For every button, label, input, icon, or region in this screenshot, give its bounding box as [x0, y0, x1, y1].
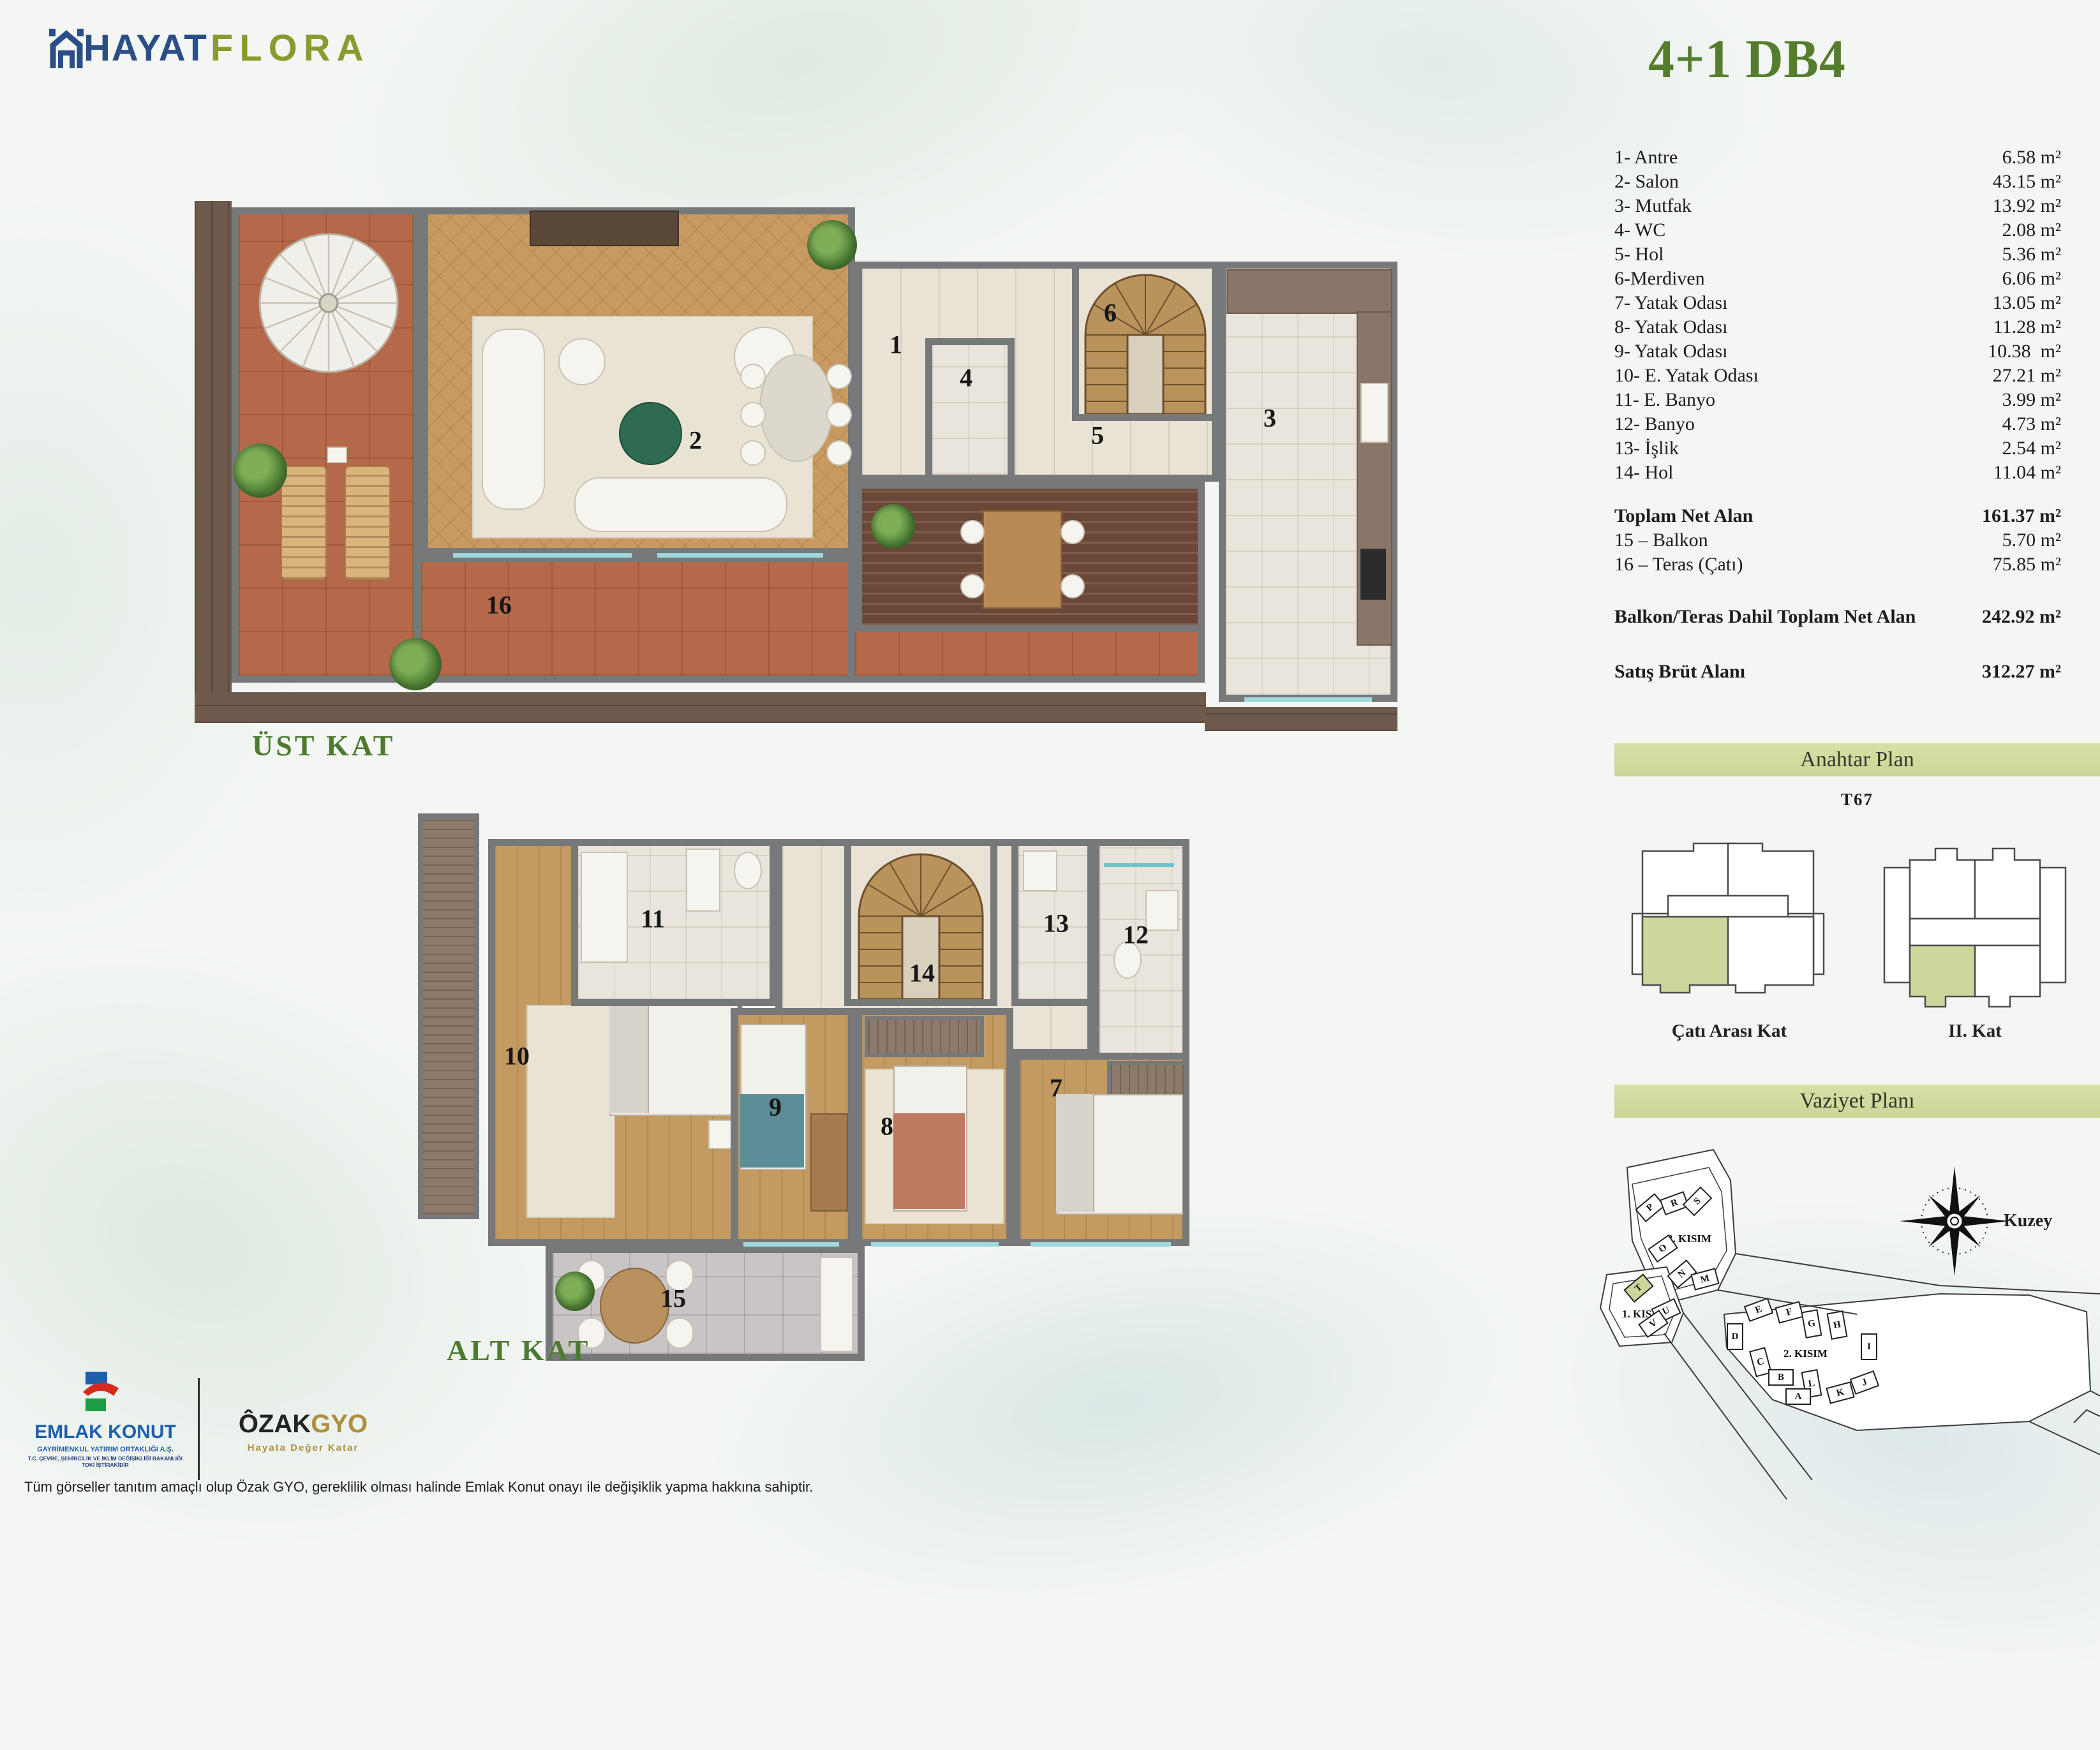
- building-marker: B: [1768, 1369, 1794, 1386]
- compass-icon: [1900, 1166, 2009, 1276]
- disclaimer-text: Tüm görseller tanıtım amaçlı olup Özak G…: [24, 1479, 813, 1495]
- room-row: 6-Merdiven 6.06 m²: [1614, 267, 2061, 291]
- sun-lounger: [345, 466, 391, 580]
- room-number: 11: [641, 904, 665, 934]
- plant: [555, 1272, 595, 1311]
- ozak-tagline: Hayata Değer Katar: [220, 1442, 386, 1453]
- sink: [1145, 890, 1179, 931]
- bed-blanket: [609, 998, 649, 1113]
- bench: [820, 1257, 853, 1352]
- room-row: 4- WC 2.08 m²: [1614, 218, 2061, 242]
- washing-machine: [1023, 850, 1057, 891]
- gross-area-row: Satış Brüt Alanı312.27 m²: [1614, 660, 2061, 684]
- room-row: 7- Yatak Odası 13.05 m²: [1614, 291, 2061, 315]
- upper-floor-plan: 12345616: [185, 191, 1448, 785]
- wardrobe: [1107, 1061, 1188, 1099]
- bedroom-rug: [526, 1005, 615, 1218]
- caption-second-floor: II. Kat: [1882, 1021, 2067, 1042]
- plant: [871, 504, 916, 549]
- room-number: 15: [660, 1284, 686, 1314]
- house-icon: [48, 29, 85, 68]
- window: [871, 1242, 999, 1247]
- north-label: Kuzey: [2004, 1211, 2052, 1231]
- brand-flora: FLORA: [211, 27, 370, 70]
- ozak-gyo-logo: ÔZAKGYO Hayata Değer Katar: [220, 1410, 386, 1453]
- key-plan-header: Anahtar Plan: [1614, 743, 2100, 776]
- section-label: 2. KISIM: [1784, 1347, 1828, 1360]
- unit-title: 4+1 DB4: [1648, 27, 1846, 91]
- wardrobe: [418, 813, 479, 1219]
- room-row: 14- Hol 11.04 m²: [1614, 461, 2061, 485]
- deck-edge: [195, 201, 232, 695]
- room-number: 4: [960, 363, 972, 393]
- outdoor-dining-table: [983, 510, 1062, 609]
- shower: [686, 849, 720, 912]
- chair: [960, 520, 985, 544]
- caption-attic: Çatı Arası Kat: [1634, 1021, 1825, 1042]
- terrace-room: [855, 625, 1205, 683]
- block-label: T67: [1614, 790, 2100, 810]
- dining-chair: [740, 364, 766, 389]
- balcony-table: [600, 1268, 669, 1344]
- deck-edge: [195, 692, 1206, 723]
- dining-chair: [740, 402, 766, 427]
- cooktop: [1360, 549, 1386, 600]
- room-row: 11- E. Banyo 3.99 m²: [1614, 388, 2061, 412]
- room-number: 2: [689, 426, 702, 456]
- dining-chair: [740, 440, 766, 466]
- building-marker: I: [1861, 1333, 1877, 1360]
- room-row: 12- Banyo 4.73 m²: [1614, 412, 2061, 436]
- wc-room: [925, 338, 1015, 482]
- upper-floor-label: ÜST KAT: [252, 729, 395, 762]
- room-row: 13- İşlik 2.54 m²: [1614, 436, 2061, 461]
- footer-divider: [198, 1378, 200, 1480]
- kitchen-counter: [1226, 269, 1392, 314]
- lower-floor-plan: 101113121498715: [418, 813, 1212, 1362]
- tv-console: [530, 211, 679, 246]
- chair: [1061, 520, 1085, 544]
- armchair: [558, 338, 606, 385]
- room-number: 8: [881, 1111, 893, 1141]
- brand-logo: HAYAT FLORA: [48, 27, 370, 70]
- extra-row: 15 – Balkon 5.70 m²: [1614, 528, 2061, 552]
- chair: [960, 574, 985, 598]
- room-number: 1: [890, 330, 902, 360]
- room-row: 5- Hol 5.36 m²: [1614, 242, 2061, 267]
- room-number: 6: [1104, 298, 1117, 328]
- room-rows: 1- Antre 6.58 m² 2- Salon 43.15 m² 3- Mu…: [1614, 145, 2061, 485]
- emlak-konut-logo: EMLAK KONUT GAYRİMENKUL YATIRIM ORTAKLIĞ…: [26, 1421, 185, 1468]
- key-plan-second-floor: [1879, 823, 2071, 1014]
- ozak-name: ÔZAK: [239, 1410, 311, 1438]
- extra-row: 16 – Teras (Çatı) 75.85 m²: [1614, 552, 2061, 577]
- toilet: [734, 852, 762, 889]
- incl-total-row: Balkon/Teras Dahil Toplam Net Alan242.92…: [1614, 605, 2061, 629]
- bathtub: [581, 852, 628, 963]
- plant: [807, 220, 857, 270]
- sofa: [574, 477, 787, 532]
- room-row: 8- Yatak Odası 11.28 m²: [1614, 315, 2061, 339]
- room-area-list: 1- Antre 6.58 m² 2- Salon 43.15 m² 3- Mu…: [1614, 145, 2061, 684]
- room-number: 7: [1050, 1073, 1062, 1103]
- sofa: [482, 329, 545, 510]
- window: [453, 553, 632, 558]
- bed-blanket: [1056, 1094, 1094, 1212]
- coffee-table: [619, 402, 682, 465]
- emlak-konut-note: T.C. ÇEVRE, ŞEHİRCİLİK VE İKLİM DEĞİŞİKL…: [26, 1455, 185, 1468]
- total-net-row: Toplam Net Alan161.37 m²: [1614, 504, 2061, 528]
- window: [743, 1242, 839, 1247]
- dining-table: [759, 354, 833, 462]
- room-number: 10: [504, 1041, 530, 1071]
- window: [657, 553, 823, 558]
- desk: [810, 1113, 848, 1212]
- bush: [389, 638, 442, 690]
- room-row: 9- Yatak Odası 10.38 m²: [1614, 339, 2061, 364]
- side-table: [327, 447, 347, 463]
- dining-chair: [826, 364, 852, 389]
- emlak-konut-title: EMLAK KONUT: [26, 1421, 185, 1443]
- chair: [1061, 574, 1085, 598]
- bed-blanket: [893, 1113, 965, 1209]
- emlak-konut-subtitle: GAYRİMENKUL YATIRIM ORTAKLIĞI A.Ş.: [26, 1446, 185, 1453]
- dining-chair: [826, 440, 852, 466]
- stair-room: [1072, 262, 1219, 421]
- kitchen-sink: [1360, 383, 1389, 443]
- lower-floor-label: ALT KAT: [447, 1333, 590, 1367]
- site-plan: Kuzey 3. KISIM1. KISIM2. KISIM PRSONMTUV…: [1582, 1123, 2100, 1506]
- building-marker: A: [1785, 1388, 1811, 1405]
- bush: [233, 443, 287, 498]
- room-number: 14: [909, 958, 935, 988]
- wardrobe: [865, 1016, 984, 1057]
- room-number: 16: [486, 590, 512, 620]
- deck-edge: [1205, 707, 1397, 731]
- room-row: 1- Antre 6.58 m²: [1614, 145, 2061, 170]
- room-row: 2- Salon 43.15 m²: [1614, 170, 2061, 194]
- room-number: 3: [1263, 403, 1276, 433]
- room-row: 3- Mutfak 13.92 m²: [1614, 194, 2061, 218]
- ozak-gyo: GYO: [311, 1410, 368, 1438]
- room-row: 10- E. Yatak Odası 27.21 m²: [1614, 364, 2061, 388]
- window: [1031, 1242, 1171, 1247]
- key-plan-attic: [1631, 824, 1825, 998]
- building-marker: D: [1727, 1323, 1743, 1350]
- extra-rows: 15 – Balkon 5.70 m² 16 – Teras (Çatı) 75…: [1614, 528, 2061, 577]
- room-number: 13: [1043, 908, 1069, 938]
- room-number: 9: [769, 1092, 782, 1122]
- site-plan-header: Vaziyet Planı: [1614, 1085, 2100, 1118]
- staircase-icon: [1079, 269, 1212, 414]
- shower-glass: [1104, 863, 1174, 867]
- room-number: 12: [1123, 920, 1149, 950]
- chair: [666, 1317, 694, 1349]
- umbrella-icon: [246, 220, 412, 386]
- emlak-konut-icon: [77, 1370, 125, 1420]
- dining-chair: [826, 402, 852, 427]
- room-number: 5: [1091, 420, 1104, 450]
- brand-hayat: HAYAT: [84, 27, 208, 70]
- window: [1244, 697, 1372, 702]
- sun-lounger: [281, 466, 327, 580]
